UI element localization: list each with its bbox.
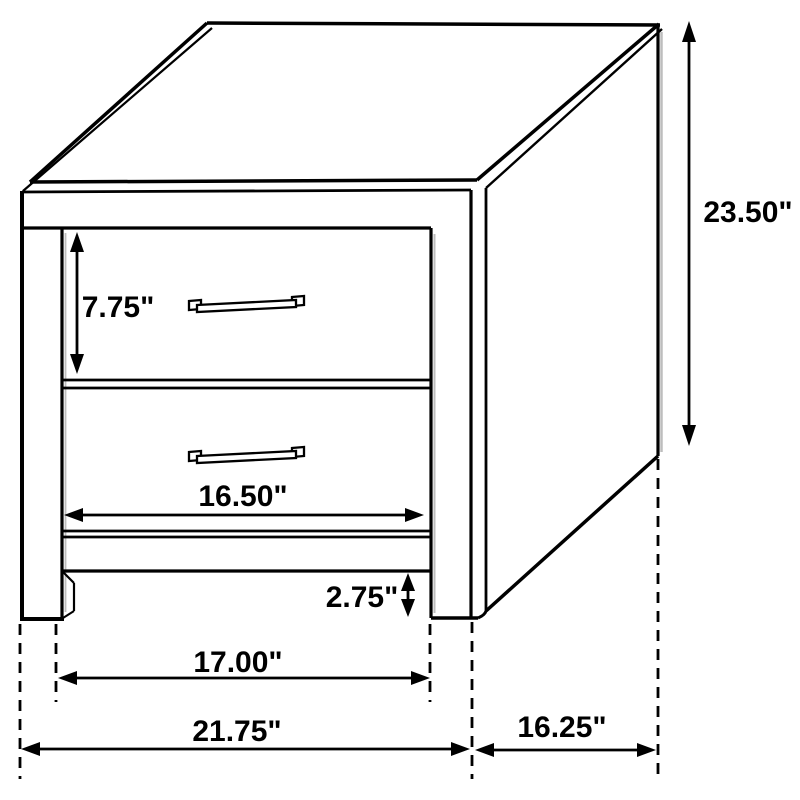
- arrowhead-up-icon: [70, 232, 84, 252]
- dim-depth-label: 16.25": [517, 711, 606, 744]
- handle-bar: [197, 451, 296, 463]
- arrowhead-left-icon: [21, 742, 40, 756]
- arrowhead-up-icon: [401, 573, 415, 591]
- arrowhead-right-icon: [405, 508, 424, 522]
- arrowhead-right-icon: [411, 671, 430, 685]
- dim-depth: 16.25": [475, 711, 656, 757]
- arrowhead-right-icon: [451, 742, 470, 756]
- nightstand-drawing: 23.50" 7.75" 16.50" 2.75" 17.00" 21.75": [0, 0, 800, 800]
- arrowhead-down-icon: [401, 599, 415, 617]
- dim-overall-width-label: 21.75": [192, 715, 281, 748]
- arrowhead-up-icon: [682, 21, 696, 42]
- dim-overall-width: 21.75": [21, 715, 470, 756]
- dim-drawer-width-label: 16.50": [198, 480, 287, 513]
- handle-bar: [197, 300, 296, 312]
- arrowhead-down-icon: [682, 425, 696, 446]
- top-left-edge-bevel: [23, 28, 212, 191]
- dim-height-label: 23.50": [703, 196, 792, 229]
- top-left-edge: [30, 23, 207, 182]
- dim-drawer-height-label: 7.75": [82, 291, 155, 324]
- top-panel-bottom-edge: [22, 190, 471, 192]
- arrowhead-left-icon: [64, 508, 83, 522]
- top-right-edge: [477, 24, 659, 180]
- dim-height: 23.50": [682, 21, 793, 446]
- dim-inner-leg-width-label: 17.00": [193, 646, 282, 679]
- drawer-1-handle: [189, 296, 304, 312]
- arrowhead-left-icon: [58, 671, 77, 685]
- dim-inner-leg-width: 17.00": [58, 646, 430, 685]
- dimension-diagram: 23.50" 7.75" 16.50" 2.75" 17.00" 21.75": [0, 0, 800, 800]
- top-front-edge: [30, 180, 477, 182]
- dim-drawer-height: 7.75": [70, 232, 154, 374]
- dim-bottom-clearance-label: 2.75": [326, 581, 399, 614]
- arrowhead-down-icon: [70, 354, 84, 374]
- left-leg-side-bottom: [63, 611, 74, 618]
- dim-bottom-clearance: 2.75": [326, 573, 415, 617]
- drawer-2-handle: [189, 447, 304, 463]
- side-panel-bottom-edge: [486, 456, 658, 611]
- dim-drawer-width: 16.50": [64, 480, 424, 522]
- right-leg-corner: [478, 611, 486, 618]
- top-back-edge: [207, 23, 660, 25]
- arrowhead-left-icon: [475, 743, 494, 757]
- arrowhead-right-icon: [637, 743, 656, 757]
- top-right-edge-bevel: [486, 29, 662, 188]
